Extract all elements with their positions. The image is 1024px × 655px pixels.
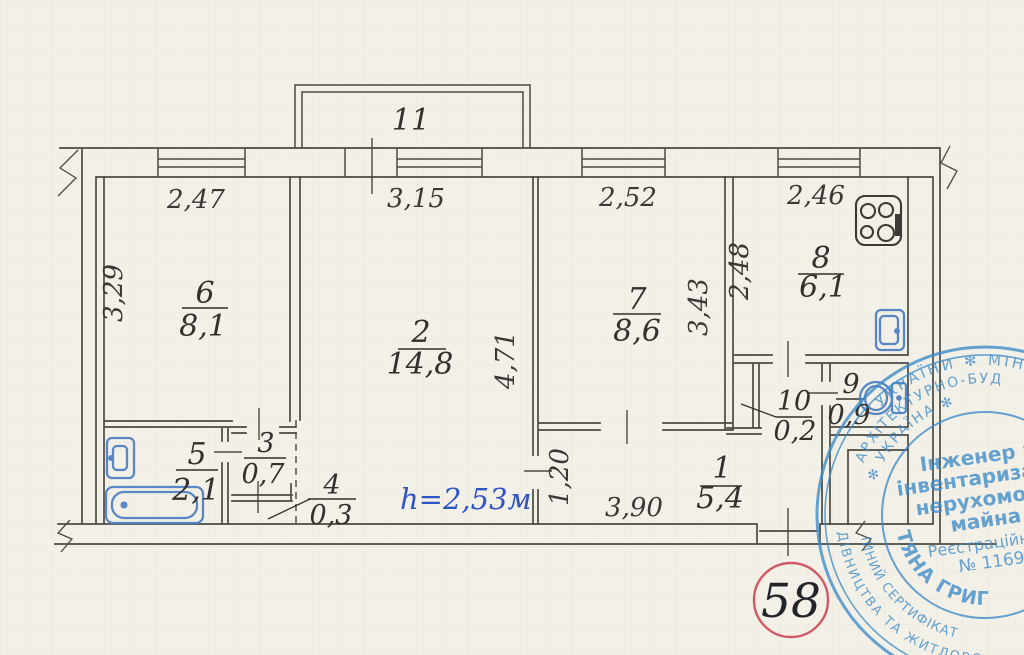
room6-area: 8,1 [179,309,227,344]
closet10-number: 10 [777,386,811,417]
apartment-number-value: 58 [761,574,821,629]
dim-hall-width: 3,90 [605,493,663,523]
dim-room2-width: 3,15 [387,184,445,214]
room2-area: 14,8 [387,347,454,382]
wc-number: 9 [842,369,859,400]
hall-area: 5,4 [696,481,744,516]
closet4-number: 4 [322,470,340,501]
dim-room7-width: 2,52 [598,183,657,213]
room6-number: 6 [195,276,214,311]
room2-number: 2 [410,315,430,350]
bathroom-number: 5 [187,437,206,472]
floor-plan-document: 2,47 3,15 2,52 2,46 3,29 4,71 3,43 2,48 … [0,0,1024,655]
closet10-area: 0,2 [774,416,817,447]
dim-kitchen-depth: 2,48 [725,242,755,301]
closet3-number: 3 [257,428,274,459]
ceiling-height-note: h=2,53м [400,482,532,516]
dim-room2-depth: 4,71 [491,331,521,390]
dim-room6-width: 2,47 [166,185,225,215]
dim-room6-depth: 3,29 [99,264,129,322]
closet3-area: 0,7 [242,459,286,490]
bathroom-area: 2,1 [171,473,220,508]
balcony-number: 11 [392,103,430,138]
dim-kitchen-width: 2,46 [786,181,845,211]
dim-hall-depth: 1,20 [545,448,575,506]
dim-room7-depth: 3,43 [684,278,714,336]
room7-area: 8,6 [613,314,661,349]
closet4-area: 0,3 [310,500,353,531]
apartment-number-stamp: 58 [754,563,828,637]
kitchen-area: 6,1 [799,270,847,305]
room7-number: 7 [627,282,647,317]
